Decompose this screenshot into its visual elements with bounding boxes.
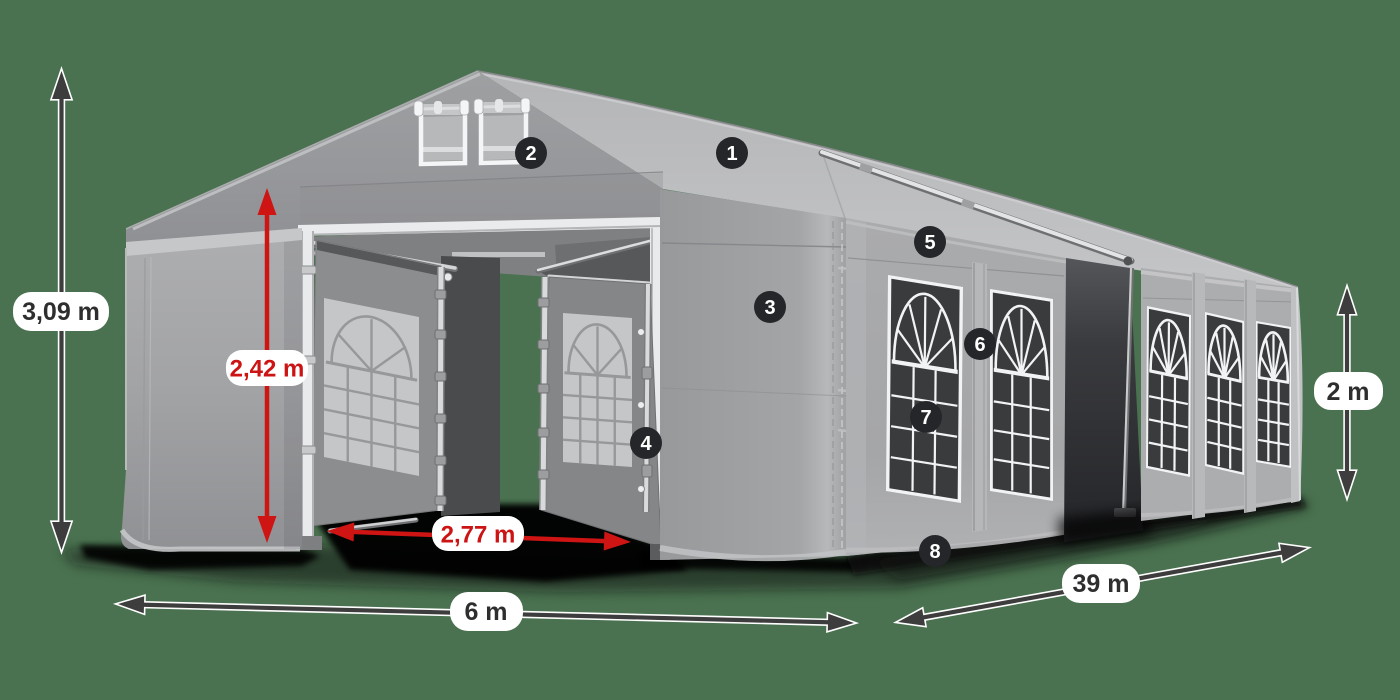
svg-text:8: 8: [929, 541, 940, 563]
svg-text:2,42 m: 2,42 m: [230, 356, 305, 383]
svg-text:6: 6: [974, 334, 985, 356]
svg-text:4: 4: [640, 433, 652, 455]
svg-text:2 m: 2 m: [1326, 378, 1369, 406]
svg-text:2: 2: [525, 143, 536, 165]
svg-text:5: 5: [924, 232, 935, 254]
svg-text:39 m: 39 m: [1073, 570, 1130, 598]
svg-text:7: 7: [920, 407, 931, 429]
svg-text:6 m: 6 m: [464, 598, 507, 626]
svg-text:2,77 m: 2,77 m: [441, 522, 516, 549]
svg-text:3: 3: [764, 297, 775, 319]
svg-text:1: 1: [726, 143, 737, 165]
svg-text:3,09 m: 3,09 m: [22, 298, 100, 326]
